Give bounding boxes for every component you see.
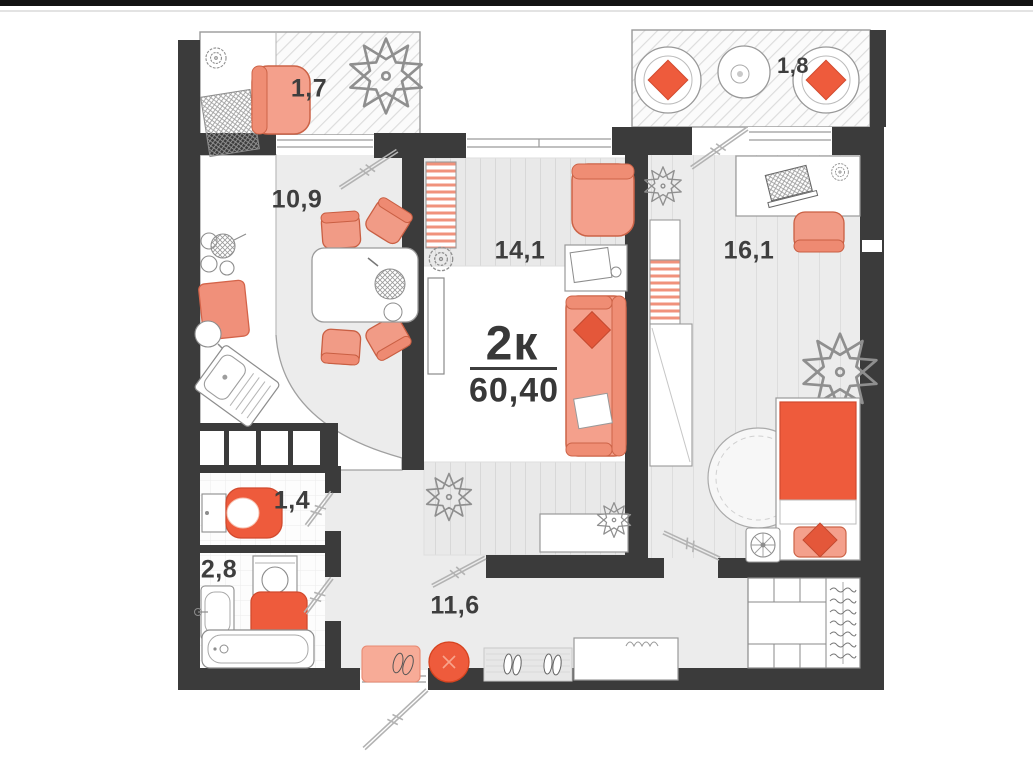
door-swing-entrance [360,686,430,753]
wardrobe-tall [650,324,692,466]
unit-divider-line [470,367,557,370]
fan-unit [746,528,780,562]
sofa-pillow-white [574,393,613,428]
room-label-toilet: 1,4 [274,487,310,516]
desk-chair [794,212,844,252]
wall-notch [862,240,882,252]
bookshelf [650,260,680,324]
room-label-balcony-right: 1,8 [777,53,809,79]
pouf [429,642,469,682]
side-table [565,245,627,291]
small-plate [384,303,402,321]
sofa [566,296,626,456]
bedroom-window [466,133,612,153]
bedroom-armchair [572,164,634,236]
round-chair-left [635,47,701,113]
bathtub [202,630,314,668]
room-label-bedroom: 14,1 [495,237,546,266]
dining-chair [321,211,361,250]
bed-blanket [780,402,856,500]
room-label-bathroom: 2,8 [201,556,237,585]
room-label-living-room: 16,1 [724,237,775,266]
toilet-fixtures [202,488,282,538]
living-balcony-window [748,127,832,145]
kitchen-balcony-window [276,135,374,153]
shoe-mat [484,648,572,681]
bookshelf [426,162,456,248]
upper-cabinet [650,220,680,260]
tv [428,278,444,374]
plate [375,269,405,299]
unit-total-area: 60,40 [469,372,559,411]
hall-console [574,638,678,680]
bed-sheet [780,500,856,524]
unit-type-label: 2к [486,317,539,372]
room-label-balcony-left: 1,7 [291,75,327,104]
room-label-hallway: 11,6 [430,592,479,621]
hall-wardrobe [748,578,860,668]
dining-chair [321,329,361,366]
bed [776,398,860,560]
room-label-kitchen: 10,9 [272,186,323,215]
floor-plan-page: 1,7 1,8 10,9 14,1 16,1 1,4 2,8 11,6 2к 6… [0,0,1033,768]
vent-shaft [188,423,338,473]
round-table [718,46,770,98]
balcony-rug [201,89,260,156]
hall-rug [362,646,420,682]
desk [736,156,860,216]
